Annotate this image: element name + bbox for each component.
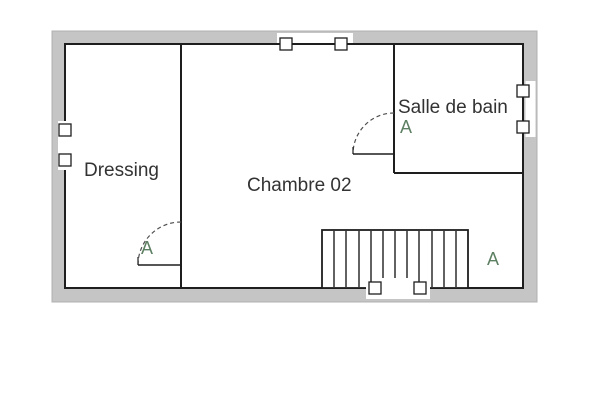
room-label-chambre: Chambre 02 — [247, 175, 352, 196]
window-frame-square — [517, 85, 529, 97]
staircase — [322, 230, 468, 288]
window-frame-square — [414, 282, 426, 294]
window-bottom — [366, 282, 430, 299]
floorplan-image: Dressing Chambre 02 Salle de bain A A A — [0, 0, 600, 412]
door-label-salle-de-bain: A — [400, 117, 412, 137]
window-frame-square — [59, 124, 71, 136]
window-frame-square — [335, 38, 347, 50]
door-label-dressing: A — [141, 238, 153, 258]
room-label-dressing: Dressing — [84, 160, 159, 181]
window-frame-square — [517, 121, 529, 133]
window-frame-square — [280, 38, 292, 50]
area-label-stairs: A — [487, 249, 499, 269]
window-frame-square — [59, 154, 71, 166]
room-label-salle-de-bain: Salle de bain — [398, 97, 508, 118]
floorplan-svg: Dressing Chambre 02 Salle de bain A A A — [0, 0, 600, 412]
window-frame-square — [369, 282, 381, 294]
